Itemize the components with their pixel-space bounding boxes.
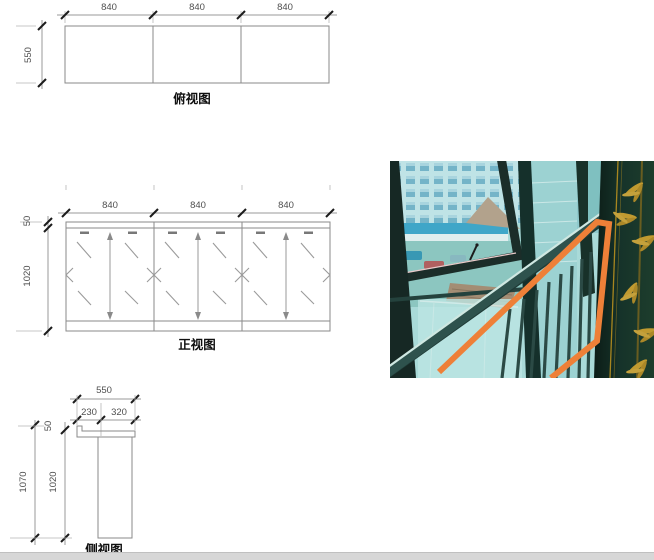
front-view: 840 840 840 50 1020	[0, 170, 350, 360]
side-view: 550 230 320 1070 1020 50 侧视图	[0, 368, 185, 560]
top-dim-550: 550	[23, 47, 34, 63]
top-dim-840-2: 840	[189, 2, 205, 13]
side-dim-1070: 1070	[18, 471, 29, 492]
front-panel-glyphs-2	[165, 232, 226, 321]
window-railing-photo	[390, 161, 654, 378]
reference-photo	[390, 161, 654, 378]
front-dim-840-1: 840	[102, 200, 118, 211]
side-column	[98, 437, 132, 538]
side-dim-1020: 1020	[48, 471, 59, 492]
horizontal-scrollbar[interactable]	[0, 552, 654, 560]
side-dim-50: 50	[43, 421, 54, 432]
front-panel-glyphs-3	[253, 232, 314, 321]
front-dim-840-2: 840	[190, 200, 206, 211]
front-view-label: 正视图	[178, 337, 216, 352]
top-view-label: 俯视图	[173, 91, 211, 106]
side-dim-320: 320	[111, 407, 127, 418]
top-dim-840-1: 840	[101, 2, 117, 13]
cad-drawing-board: 840 840 840 550 俯视图 840 840 840	[0, 0, 654, 560]
front-panel-glyphs-1	[77, 232, 138, 321]
side-cap-plate	[77, 426, 135, 437]
front-dim-840-3: 840	[278, 200, 294, 211]
top-dim-840-3: 840	[277, 2, 293, 13]
side-dim-550: 550	[96, 385, 112, 396]
front-dim-50: 50	[22, 216, 33, 227]
top-view: 840 840 840 550 俯视图	[0, 0, 350, 112]
front-dim-1020: 1020	[22, 265, 33, 286]
side-dim-230: 230	[81, 407, 97, 418]
